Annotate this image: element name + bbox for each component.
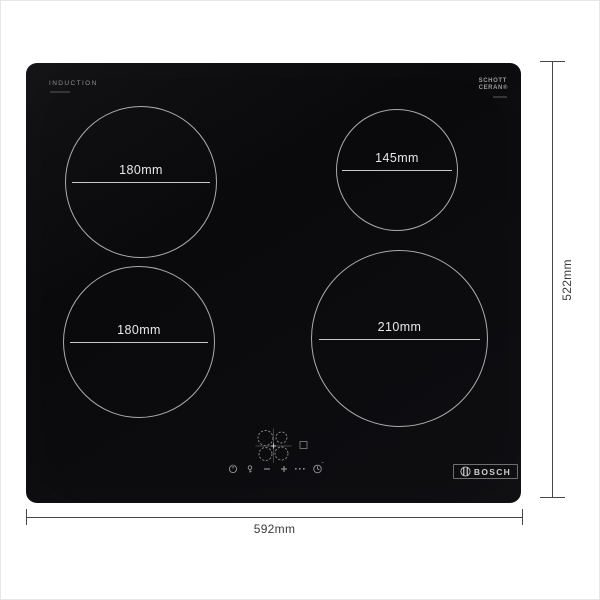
control-panel-icons <box>221 425 331 475</box>
fine-print-line <box>50 91 70 93</box>
power-icon <box>229 464 236 472</box>
depth-dimension-line <box>552 61 553 498</box>
depth-dimension-label: 522mm <box>554 239 580 321</box>
schott-line: SCHOTT <box>479 78 508 85</box>
product-diagram: INDUCTION SCHOTT CERAN® 180mm 145mm 180m… <box>0 0 600 600</box>
level-marks-icon <box>295 468 305 470</box>
touch-control-panel <box>221 425 331 475</box>
diameter-line <box>319 339 480 340</box>
timer-icon <box>314 462 324 472</box>
zone-diameter-label: 145mm <box>337 151 457 165</box>
zone-diameter-label: 210mm <box>312 320 487 334</box>
cooking-zone-front-left: 180mm <box>63 266 215 418</box>
key-lock-icon <box>248 466 252 473</box>
center-plus-icon <box>271 444 276 449</box>
zone-diameter-label: 180mm <box>64 323 214 337</box>
diameter-line <box>72 182 210 183</box>
zone-diameter-label: 180mm <box>66 163 216 177</box>
induction-hob-surface: INDUCTION SCHOTT CERAN® 180mm 145mm 180m… <box>26 63 521 503</box>
cooking-zone-rear-right: 145mm <box>336 109 458 231</box>
diameter-line <box>342 170 452 171</box>
schott-ceran-logo: SCHOTT CERAN® <box>479 78 508 91</box>
bosch-wordmark: BOSCH <box>474 467 511 477</box>
plus-icon <box>281 466 287 472</box>
boost-indicator-icon <box>300 442 307 449</box>
bosch-anchor-icon <box>460 466 471 477</box>
induction-silkscreen-label: INDUCTION <box>49 80 98 87</box>
depth-dimension-tick-top <box>540 61 565 62</box>
cooking-zone-rear-left: 180mm <box>65 106 217 258</box>
depth-dimension-tick-bottom <box>540 497 565 498</box>
cooking-zone-front-right: 210mm <box>311 250 488 427</box>
width-dimension-label: 592mm <box>26 522 523 536</box>
fine-print-line <box>493 96 507 98</box>
bosch-logo: BOSCH <box>453 464 518 479</box>
diameter-line <box>70 342 208 343</box>
width-dimension-line <box>26 517 523 518</box>
ceran-line: CERAN® <box>479 85 508 92</box>
